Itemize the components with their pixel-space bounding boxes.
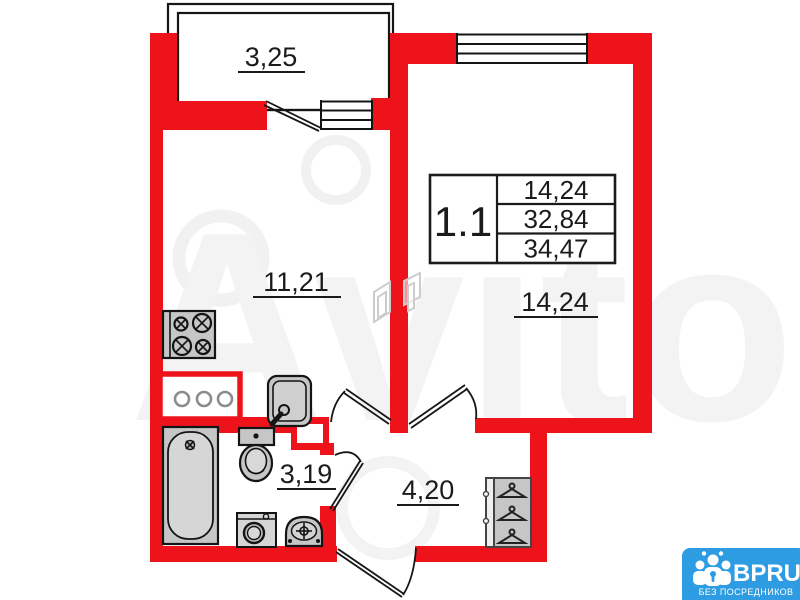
stove-icon (163, 311, 215, 358)
table-row-area: 32,84 (523, 204, 588, 234)
wall-kitchen-top (150, 101, 267, 130)
bathroom-area-label: 3,19 (280, 459, 333, 489)
unit-info-table: 1.1 14,24 32,84 34,47 (430, 175, 615, 264)
bathtub-icon (163, 427, 218, 544)
wall-bath-right-upper (320, 443, 334, 455)
bpru-logo[interactable]: BPRU БЕЗ ПОСРЕДНИКОВ (682, 548, 800, 600)
wall-bathroom-bottom (150, 546, 337, 562)
kitchen-counter-icon (160, 374, 240, 419)
logo-brand-text: BPRU (733, 560, 800, 587)
wardrobe-icon (484, 478, 532, 547)
floorplan-image[interactable]: Avito (0, 0, 800, 600)
washing-machine-icon (237, 513, 276, 547)
table-row-living-area: 14,24 (523, 175, 588, 205)
balcony-area-label: 3,25 (245, 42, 298, 72)
kitchen-sink-icon (268, 376, 311, 426)
bedroom-window (456, 33, 588, 64)
unit-number: 1.1 (434, 198, 492, 245)
wall-hallway-bottom (415, 546, 547, 562)
wall-middle (390, 33, 408, 433)
wall-hallway-right (530, 425, 547, 562)
bedroom-area-label: 14,24 (521, 287, 589, 317)
kitchen-window (320, 100, 373, 130)
hallway-area-label: 4,20 (402, 475, 455, 505)
wall-right (633, 33, 652, 433)
wall-bedroom-top-left (400, 33, 456, 64)
kitchen-area-label: 11,21 (263, 267, 329, 297)
toilet-icon (239, 428, 274, 481)
table-row-total-area: 34,47 (523, 234, 588, 264)
wall-bedroom-bottom (475, 418, 652, 433)
washbasin-icon (286, 517, 322, 546)
logo-tagline-text: БЕЗ ПОСРЕДНИКОВ (699, 587, 794, 597)
wall-left-lower (150, 101, 163, 562)
